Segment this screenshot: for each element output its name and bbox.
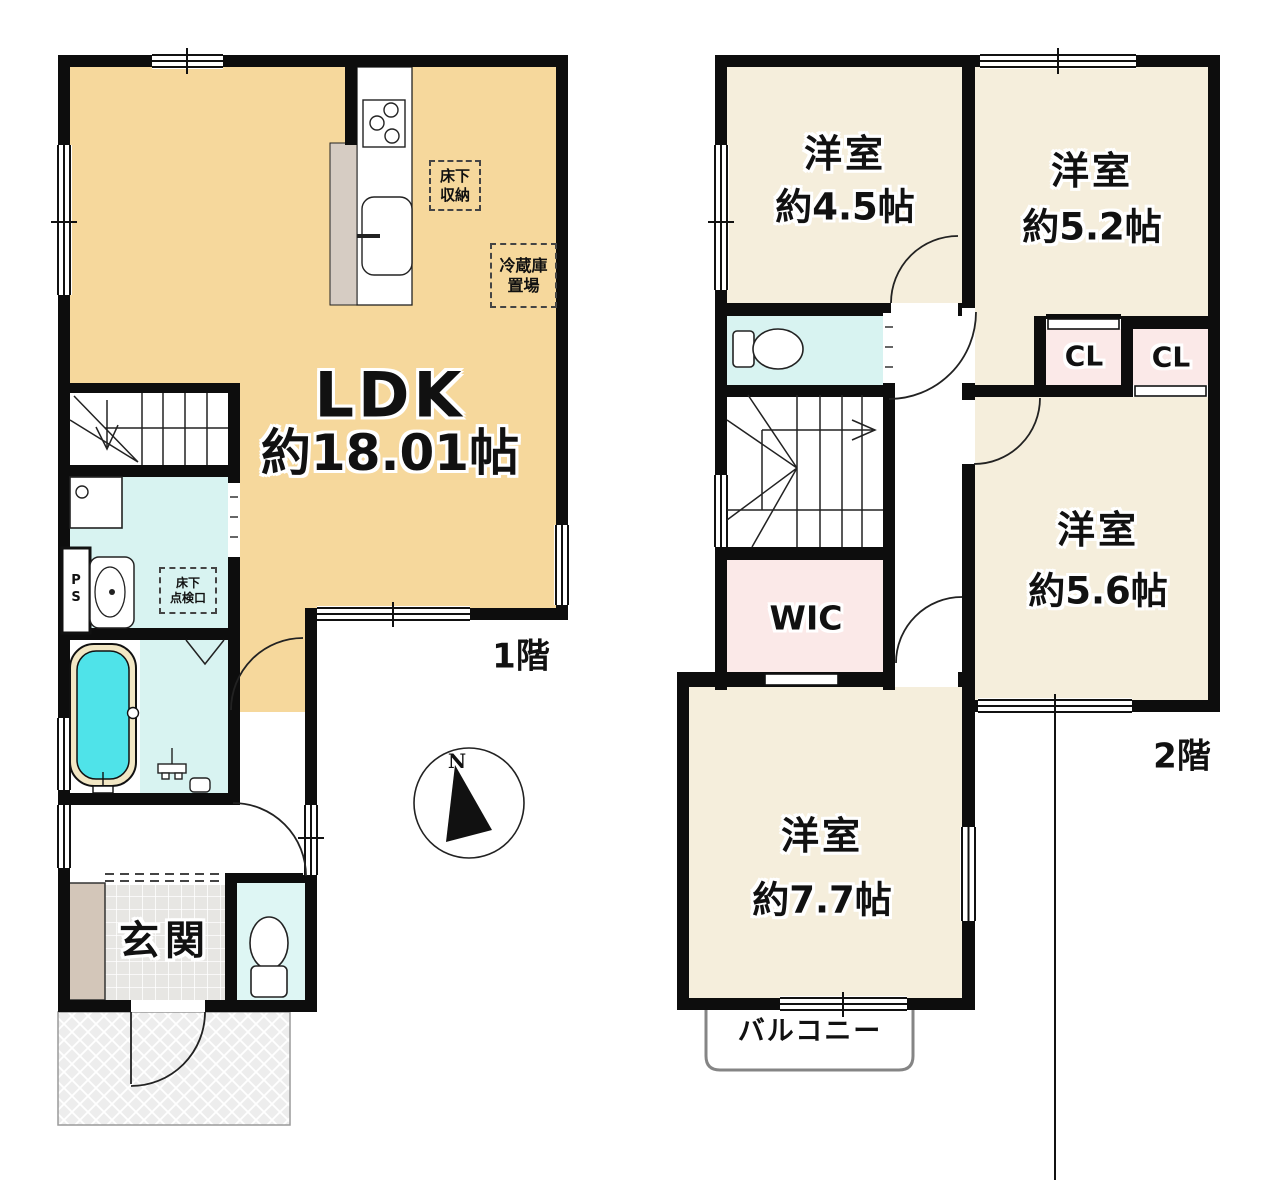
wic-sliding-door <box>765 674 838 685</box>
room-label-77-size: 約7.7帖 <box>752 882 892 921</box>
wall <box>58 793 240 805</box>
floorplan-page: LDK 約18.01帖 玄関 1階 2階 床下 収納 冷蔵庫 置場 床下 点検口… <box>0 0 1270 1180</box>
note-line: 点検口 <box>170 591 206 606</box>
note-line: 冷蔵庫 <box>499 256 547 276</box>
stairs-floor1 <box>70 393 228 465</box>
compass-north-label: N <box>448 750 466 772</box>
room-label-ldk-size: 約18.01帖 <box>261 427 519 480</box>
window <box>713 475 729 547</box>
wall <box>345 55 357 145</box>
closet-left-opening <box>1048 319 1119 329</box>
washing-machine <box>70 477 122 528</box>
room-52-alcove <box>975 316 1034 397</box>
floor1-label: 1階 <box>492 638 550 675</box>
note-underfloor-storage: 床下 収納 <box>429 160 481 211</box>
note-line: 置場 <box>507 276 539 296</box>
door-opening <box>895 672 958 687</box>
wall <box>1133 316 1208 329</box>
stove-burner <box>370 116 384 130</box>
floor2-label: 2階 <box>1153 738 1211 775</box>
wall <box>225 873 237 1012</box>
ps-label: PS <box>69 573 83 607</box>
room-label-52: 洋室 <box>1051 152 1133 192</box>
wall <box>715 547 895 560</box>
wall <box>962 385 1133 397</box>
porch <box>58 1012 290 1125</box>
wall <box>1121 316 1133 397</box>
wall <box>228 383 240 805</box>
door-opening <box>891 303 958 316</box>
window <box>56 805 72 868</box>
room-label-77: 洋室 <box>781 817 863 857</box>
note-line: 床下 <box>440 167 470 186</box>
washing-machine-knob <box>76 486 88 498</box>
room-label-ldk: LDK <box>314 362 465 427</box>
room-label-45-size: 約4.5帖 <box>775 189 915 228</box>
shoe-cabinet <box>67 883 105 1000</box>
note-line: 収納 <box>440 186 470 205</box>
closet-right-opening <box>1135 386 1206 396</box>
room-label-56-size: 約5.6帖 <box>1028 573 1168 612</box>
compass <box>414 748 524 858</box>
stairs-floor2 <box>727 395 883 547</box>
room-label-45: 洋室 <box>804 135 886 175</box>
window <box>298 805 324 875</box>
bathtub <box>70 644 139 793</box>
door-arc <box>233 803 306 876</box>
door-arc <box>896 597 962 663</box>
entrance-step-line <box>105 874 225 881</box>
washbasin <box>90 557 134 628</box>
room-label-entrance: 玄関 <box>119 920 211 962</box>
wall <box>677 672 689 1010</box>
stove-burner <box>384 103 398 117</box>
wall <box>58 55 568 67</box>
room-label-wic: WIC <box>770 602 843 637</box>
closet-left-label: CL <box>1065 341 1103 370</box>
door-opening <box>131 1000 205 1012</box>
note-refrigerator-space: 冷蔵庫 置場 <box>490 243 557 308</box>
wall <box>58 465 240 477</box>
note-line: 床下 <box>176 576 200 591</box>
wall <box>1034 316 1046 397</box>
toilet2-sliding-door <box>883 313 895 383</box>
room-label-56: 洋室 <box>1057 511 1139 551</box>
washroom-sliding-door <box>228 483 240 557</box>
toilet-fixture <box>733 329 803 369</box>
kitchen-side-panel <box>330 143 357 305</box>
wall <box>58 383 240 393</box>
closet-right-label: CL <box>1152 342 1190 371</box>
window <box>554 525 570 605</box>
stove-burner <box>385 129 399 143</box>
toilet-fixture <box>250 917 288 997</box>
door-opening <box>962 400 975 464</box>
room-label-52-size: 約5.2帖 <box>1022 209 1162 248</box>
balcony-label: バルコニー <box>738 1017 882 1047</box>
wall <box>1208 55 1220 712</box>
note-underfloor-access: 床下 点検口 <box>159 567 217 614</box>
window <box>978 694 1132 1180</box>
wall <box>715 385 895 397</box>
window <box>960 827 977 921</box>
